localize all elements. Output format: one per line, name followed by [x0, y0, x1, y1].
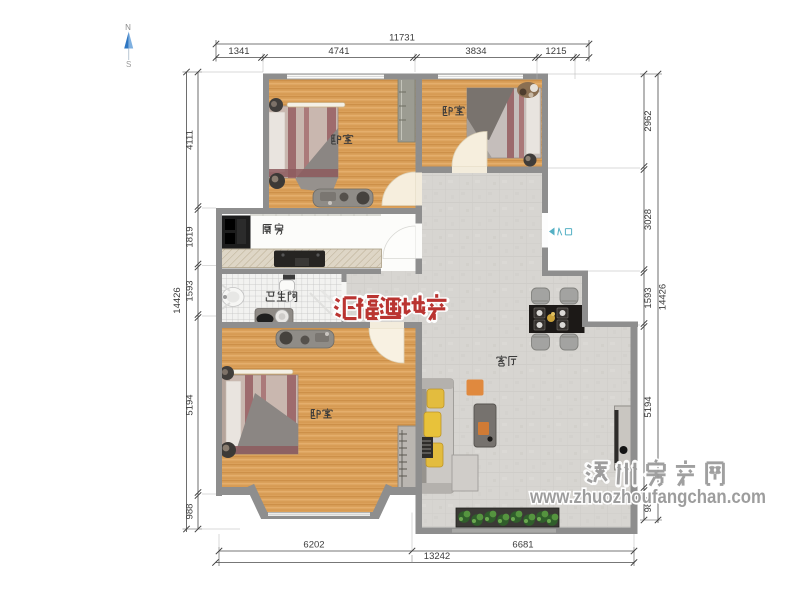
svg-text:14426: 14426 [172, 287, 183, 313]
svg-text:3834: 3834 [465, 46, 486, 57]
svg-text:www.zhuozhoufangchan.com: www.zhuozhoufangchan.com [529, 486, 766, 508]
svg-text:1593: 1593 [185, 280, 196, 301]
svg-text:5194: 5194 [185, 394, 196, 415]
svg-text:1819: 1819 [185, 226, 196, 247]
svg-text:5194: 5194 [643, 396, 654, 417]
svg-text:4111: 4111 [185, 130, 196, 150]
svg-text:13242: 13242 [424, 551, 450, 562]
svg-text:1593: 1593 [643, 287, 654, 308]
svg-text:988: 988 [185, 504, 196, 520]
svg-text:14426: 14426 [658, 284, 669, 310]
svg-text:3028: 3028 [643, 209, 654, 230]
svg-text:1215: 1215 [545, 46, 566, 57]
svg-text:4741: 4741 [328, 46, 349, 57]
svg-text:N: N [125, 23, 131, 32]
svg-text:S: S [126, 60, 131, 69]
svg-text:1341: 1341 [228, 46, 249, 57]
svg-text:6202: 6202 [303, 540, 324, 551]
svg-text:11731: 11731 [389, 33, 415, 44]
svg-text:6681: 6681 [512, 540, 533, 551]
svg-text:2962: 2962 [643, 110, 654, 131]
